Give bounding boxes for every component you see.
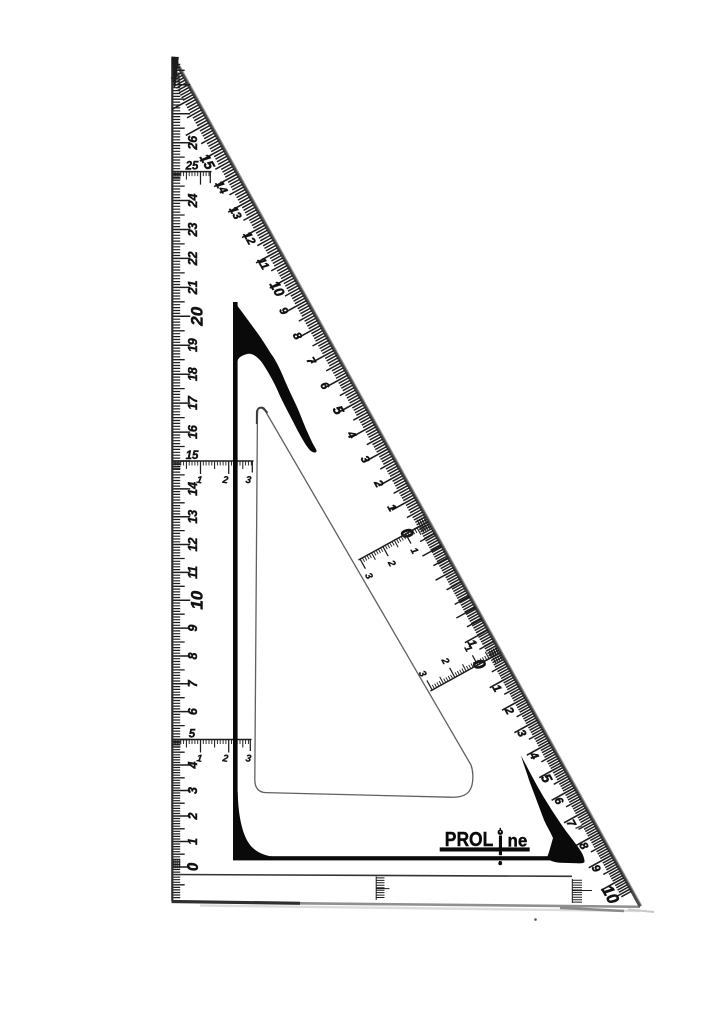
svg-text:23: 23 bbox=[186, 223, 200, 238]
svg-text:12: 12 bbox=[186, 538, 200, 552]
svg-text:9: 9 bbox=[186, 625, 200, 632]
svg-text:13: 13 bbox=[186, 510, 200, 524]
svg-text:11: 11 bbox=[186, 566, 200, 579]
svg-text:ne: ne bbox=[508, 830, 528, 850]
svg-text:25: 25 bbox=[185, 161, 199, 173]
svg-text:22: 22 bbox=[186, 251, 200, 266]
svg-text:2: 2 bbox=[186, 812, 200, 820]
svg-text:5: 5 bbox=[189, 728, 196, 740]
svg-text:16: 16 bbox=[186, 424, 200, 439]
svg-text:17: 17 bbox=[186, 395, 200, 410]
svg-text:20: 20 bbox=[188, 306, 207, 326]
svg-text:21: 21 bbox=[186, 280, 200, 295]
svg-text:18: 18 bbox=[186, 367, 200, 381]
svg-text:1: 1 bbox=[186, 838, 200, 845]
svg-text:3: 3 bbox=[186, 787, 200, 794]
svg-text:15: 15 bbox=[186, 450, 199, 462]
svg-text:10: 10 bbox=[188, 590, 207, 609]
svg-text:19: 19 bbox=[186, 338, 200, 352]
svg-text:26: 26 bbox=[186, 135, 200, 151]
svg-text:6: 6 bbox=[186, 707, 200, 715]
svg-text:8: 8 bbox=[186, 652, 200, 659]
svg-text:7: 7 bbox=[186, 679, 200, 687]
svg-text:24: 24 bbox=[186, 194, 200, 209]
